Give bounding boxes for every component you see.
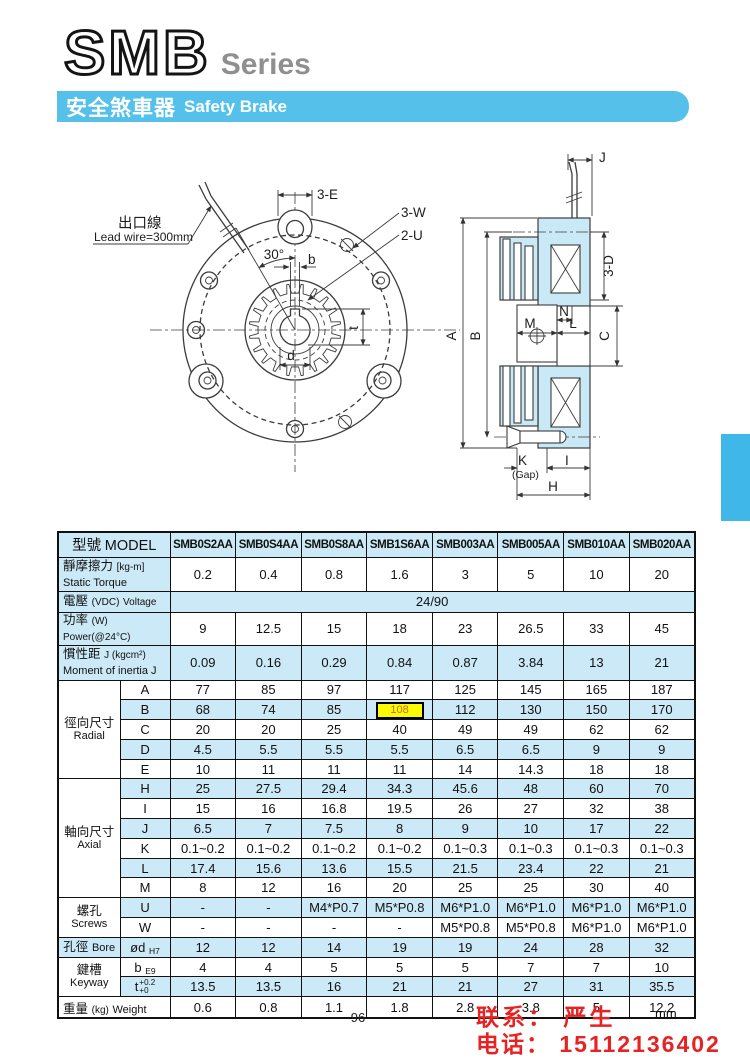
table-cell: 8: [367, 819, 433, 839]
table-cell: 33: [564, 612, 630, 645]
group-label: 鍵槽Keyway: [58, 957, 120, 997]
table-cell: 12: [170, 937, 236, 957]
table-cell: 21: [432, 977, 498, 997]
dim-row-J: J6.577.589101722: [58, 819, 695, 839]
dim-label-k: K: [518, 453, 527, 468]
page-number: 96: [338, 1010, 378, 1025]
table-cell: 16.8: [301, 799, 367, 819]
table-cell: 62: [564, 720, 630, 740]
table-cell: 9: [629, 739, 695, 759]
table-cell: 170: [629, 700, 695, 720]
table-cell: 28: [564, 937, 630, 957]
table-cell: 165: [564, 680, 630, 700]
table-cell: 0.1~0.3: [432, 838, 498, 858]
dim-row-C: C2020254049496262: [58, 720, 695, 740]
table-cell: 62: [629, 720, 695, 740]
table-cell: 0.1~0.3: [629, 838, 695, 858]
table-cell: 0.6: [170, 997, 236, 1018]
section-view-drawing: J 3-D A B N M L C K (Gap) I H: [444, 150, 623, 500]
table-cell: 3: [432, 557, 498, 591]
table-cell: 49: [498, 720, 564, 740]
table-cell: 11: [367, 759, 433, 779]
table-cell: 9: [432, 819, 498, 839]
table-cell: 15.6: [236, 858, 302, 878]
dim-label-j: J: [599, 150, 606, 165]
model-column-header: SMB0S2AA: [170, 532, 236, 557]
catalog-page: SMBSeries 安全煞車器 Safety Brake .ln{fill:no…: [0, 0, 750, 1061]
table-cell: M6*P1.0: [564, 918, 630, 938]
table-cell: 0.8: [236, 997, 302, 1018]
table-cell: M6*P1.0: [498, 898, 564, 918]
table-cell: 4: [170, 957, 236, 977]
table-cell: 7: [564, 957, 630, 977]
table-cell: 5: [367, 957, 433, 977]
spec-table: 型號 MODELSMB0S2AASMB0S4AASMB0S8AASMB1S6AA…: [57, 531, 696, 1019]
dim-key-J: J: [120, 819, 170, 839]
model-column-header: SMB0S4AA: [236, 532, 302, 557]
dim-label-gap: (Gap): [512, 469, 539, 481]
table-cell: 18: [564, 759, 630, 779]
table-cell: 29.4: [301, 779, 367, 799]
table-cell: 0.8: [301, 557, 367, 591]
dim-key-b: b E9: [120, 957, 170, 977]
table-cell: 0.1~0.2: [301, 838, 367, 858]
table-cell: 16: [301, 878, 367, 898]
dim-row-W: W----M5*P0.8M5*P0.8M6*P1.0M6*P1.0: [58, 918, 695, 938]
group-label: 軸向尺寸Axial: [58, 779, 120, 898]
table-cell: 48: [498, 779, 564, 799]
table-cell: 5: [432, 957, 498, 977]
table-cell: 25: [498, 878, 564, 898]
table-cell: 10: [629, 957, 695, 977]
table-cell: 38: [629, 799, 695, 819]
dim-label-b: b: [308, 252, 316, 267]
table-cell: 5: [301, 957, 367, 977]
table-cell: 26.5: [498, 612, 564, 645]
table-cell: -: [301, 918, 367, 938]
dim-key-C: C: [120, 720, 170, 740]
dim-label-h: H: [548, 479, 558, 494]
table-cell: 0.1~0.2: [170, 838, 236, 858]
dim-label-b2: B: [468, 331, 483, 340]
dim-label-m: M: [524, 316, 535, 331]
table-cell: 6.5: [170, 819, 236, 839]
dim-key-W: W: [120, 918, 170, 938]
table-cell: 14: [301, 937, 367, 957]
table-cell: 85: [301, 700, 367, 720]
spec-row-power: 功率 (W) Power(@24°C)912.515182326.53345: [58, 612, 695, 645]
table-cell: 1.6: [367, 557, 433, 591]
table-cell: 30: [564, 878, 630, 898]
model-column-header: SMB003AA: [432, 532, 498, 557]
table-cell: -: [236, 918, 302, 938]
dim-label-a: A: [444, 331, 459, 340]
row-label-inertia: 慣性距 J (kgcm²)Moment of inertia J: [58, 645, 170, 680]
table-cell: 117: [367, 680, 433, 700]
table-cell: 13.5: [236, 977, 302, 997]
spec-row-static-torque: 靜摩擦力 [kg-m]Static Torque0.20.40.81.63510…: [58, 557, 695, 591]
dim-row-I: I151616.819.526273238: [58, 799, 695, 819]
dim-label-t: t: [346, 326, 361, 330]
table-cell: 32: [564, 799, 630, 819]
category-banner: 安全煞車器 Safety Brake: [57, 91, 689, 122]
table-cell: 0.29: [301, 645, 367, 680]
banner-title-zh: 安全煞車器: [66, 92, 176, 122]
table-cell: 24: [498, 937, 564, 957]
dim-row-ød: 孔徑 Boreød H71212141919242832: [58, 937, 695, 957]
table-cell: 4: [236, 957, 302, 977]
table-cell: 25: [432, 878, 498, 898]
dim-key-L: L: [120, 858, 170, 878]
table-cell: 45: [629, 612, 695, 645]
row-label-weight: 重量 (kg) Weight: [58, 997, 170, 1018]
technical-drawings: .ln{fill:none;stroke:#3c3c3c;stroke-widt…: [60, 140, 750, 532]
table-cell: 4.5: [170, 739, 236, 759]
table-cell: 20: [170, 720, 236, 740]
table-cell: 21: [367, 977, 433, 997]
page-title: SMBSeries: [64, 18, 311, 89]
table-cell: 15: [301, 612, 367, 645]
table-cell: 20: [367, 878, 433, 898]
banner-title-en: Safety Brake: [184, 97, 287, 117]
highlighted-cell: 108: [367, 700, 433, 720]
table-cell: -: [170, 898, 236, 918]
table-cell: 27.5: [236, 779, 302, 799]
table-cell: 16: [301, 977, 367, 997]
table-cell: 13: [564, 645, 630, 680]
table-cell: 70: [629, 779, 695, 799]
dim-key-B: B: [120, 700, 170, 720]
dim-row-b: 鍵槽Keywayb E9445557710: [58, 957, 695, 977]
table-cell: M6*P1.0: [629, 918, 695, 938]
table-cell: M4*P0.7: [301, 898, 367, 918]
table-cell: 0.4: [236, 557, 302, 591]
table-cell: 0.09: [170, 645, 236, 680]
contact-stamp: 联系： 严生 电话： 15112136402: [476, 1004, 721, 1058]
front-view-drawing: 出口線 Lead wire=300mm 3-E 3-W 2-U 30° b d …: [93, 182, 460, 472]
dim-row-A: 徑向尺寸RadialA778597117125145165187: [58, 680, 695, 700]
table-cell: -: [236, 898, 302, 918]
table-cell: -: [170, 918, 236, 938]
table-cell: 15.5: [367, 858, 433, 878]
dim-row-H: 軸向尺寸AxialH2527.529.434.345.6486070: [58, 779, 695, 799]
dim-label-n: N: [559, 304, 569, 319]
highlighted-value[interactable]: 108: [376, 702, 424, 719]
table-cell: 0.1~0.3: [498, 838, 564, 858]
group-label: 孔徑 Bore: [58, 937, 120, 957]
series-subtitle: Series: [221, 48, 311, 81]
table-cell: 112: [432, 700, 498, 720]
table-cell: 45.6: [432, 779, 498, 799]
table-cell: 27: [498, 977, 564, 997]
model-column-header: SMB010AA: [564, 532, 630, 557]
table-cell: 21.5: [432, 858, 498, 878]
dim-key-M: M: [120, 878, 170, 898]
table-cell: 19: [432, 937, 498, 957]
spec-row-inertia: 慣性距 J (kgcm²)Moment of inertia J0.090.16…: [58, 645, 695, 680]
table-cell: 26: [432, 799, 498, 819]
span-value-cell: 24/90: [170, 591, 695, 612]
table-cell: 68: [170, 700, 236, 720]
table-cell: 49: [432, 720, 498, 740]
table-cell: -: [367, 918, 433, 938]
group-label: 徑向尺寸Radial: [58, 680, 120, 779]
contact-phone: 电话： 15112136402: [476, 1030, 721, 1058]
dim-row-t: t+0.2+013.513.5162121273135.5: [58, 977, 695, 997]
dim-row-D: D4.55.55.55.56.56.599: [58, 739, 695, 759]
dim-row-B: B687485108112130150170: [58, 700, 695, 720]
model-column-header: SMB020AA: [629, 532, 695, 557]
group-label: 螺孔Screws: [58, 898, 120, 938]
table-cell: 5.5: [301, 739, 367, 759]
series-title: SMB: [64, 19, 211, 88]
dim-key-E: E: [120, 759, 170, 779]
table-cell: 14: [432, 759, 498, 779]
table-cell: 8: [170, 878, 236, 898]
table-cell: 19: [367, 937, 433, 957]
table-cell: 17: [564, 819, 630, 839]
dim-label-c: C: [597, 331, 612, 341]
dim-row-U: 螺孔ScrewsU--M4*P0.7M5*P0.8M6*P1.0M6*P1.0M…: [58, 898, 695, 918]
contact-name: 联系： 严生: [476, 1004, 721, 1030]
table-cell: 32: [629, 937, 695, 957]
table-cell: 9: [170, 612, 236, 645]
table-cell: M5*P0.8: [367, 898, 433, 918]
table-cell: 0.87: [432, 645, 498, 680]
dim-key-I: I: [120, 799, 170, 819]
table-cell: 18: [367, 612, 433, 645]
table-cell: 40: [367, 720, 433, 740]
table-cell: 0.84: [367, 645, 433, 680]
model-column-header: SMB005AA: [498, 532, 564, 557]
table-cell: 16: [236, 799, 302, 819]
model-header-row: 型號 MODELSMB0S2AASMB0S4AASMB0S8AASMB1S6AA…: [58, 532, 695, 557]
table-cell: 35.5: [629, 977, 695, 997]
table-cell: 6.5: [432, 739, 498, 759]
row-label-voltage: 電壓 (VDC) Voltage: [58, 591, 170, 612]
table-cell: 60: [564, 779, 630, 799]
dim-label-l: L: [569, 316, 577, 331]
table-cell: 40: [629, 878, 695, 898]
row-label-static-torque: 靜摩擦力 [kg-m]Static Torque: [58, 557, 170, 591]
table-cell: 125: [432, 680, 498, 700]
table-cell: 18: [629, 759, 695, 779]
table-cell: 74: [236, 700, 302, 720]
table-cell: 20: [629, 557, 695, 591]
dim-label-3e: 3-E: [317, 187, 338, 202]
table-cell: 7.5: [301, 819, 367, 839]
dim-row-K: K0.1~0.20.1~0.20.1~0.20.1~0.20.1~0.30.1~…: [58, 838, 695, 858]
table-cell: 21: [629, 645, 695, 680]
table-cell: 130: [498, 700, 564, 720]
table-cell: 12.5: [236, 612, 302, 645]
dim-key-A: A: [120, 680, 170, 700]
dim-row-L: L17.415.613.615.521.523.42221: [58, 858, 695, 878]
table-cell: 150: [564, 700, 630, 720]
table-cell: 23.4: [498, 858, 564, 878]
table-cell: 0.2: [170, 557, 236, 591]
table-cell: 21: [629, 858, 695, 878]
dim-label-i: I: [565, 453, 569, 468]
table-cell: M6*P1.0: [629, 898, 695, 918]
table-cell: 77: [170, 680, 236, 700]
table-cell: 7: [236, 819, 302, 839]
table-cell: 22: [629, 819, 695, 839]
table-cell: 0.1~0.3: [564, 838, 630, 858]
table-cell: 23: [432, 612, 498, 645]
table-cell: 25: [170, 779, 236, 799]
dim-key-H: H: [120, 779, 170, 799]
dim-label-2u: 2-U: [401, 228, 423, 243]
dim-row-M: M812162025253040: [58, 878, 695, 898]
table-cell: 10: [498, 819, 564, 839]
table-cell: 27: [498, 799, 564, 819]
table-cell: 15: [170, 799, 236, 819]
table-cell: 0.16: [236, 645, 302, 680]
table-cell: 11: [301, 759, 367, 779]
table-cell: M5*P0.8: [498, 918, 564, 938]
table-cell: 7: [498, 957, 564, 977]
dim-row-E: E101111111414.31818: [58, 759, 695, 779]
model-column-header: SMB1S6AA: [367, 532, 433, 557]
table-cell: 97: [301, 680, 367, 700]
table-cell: 0.1~0.2: [236, 838, 302, 858]
dim-key-U: U: [120, 898, 170, 918]
spec-row-voltage: 電壓 (VDC) Voltage24/90: [58, 591, 695, 612]
table-cell: 19.5: [367, 799, 433, 819]
dim-key-D: D: [120, 739, 170, 759]
model-column-header: SMB0S8AA: [301, 532, 367, 557]
table-cell: M6*P1.0: [432, 898, 498, 918]
table-cell: 12: [236, 878, 302, 898]
table-cell: 10: [170, 759, 236, 779]
dim-label-30deg: 30°: [264, 247, 284, 262]
table-cell: 14.3: [498, 759, 564, 779]
table-cell: 25: [301, 720, 367, 740]
table-cell: 31: [564, 977, 630, 997]
table-cell: M5*P0.8: [432, 918, 498, 938]
dim-label-3w: 3-W: [401, 205, 426, 220]
table-cell: 13.6: [301, 858, 367, 878]
dim-key-ød: ød H7: [120, 937, 170, 957]
dim-key-K: K: [120, 838, 170, 858]
table-cell: 10: [564, 557, 630, 591]
table-cell: 85: [236, 680, 302, 700]
table-cell: 20: [236, 720, 302, 740]
table-cell: 5.5: [367, 739, 433, 759]
table-cell: 34.3: [367, 779, 433, 799]
dim-label-3d: 3-D: [601, 255, 616, 277]
table-cell: 187: [629, 680, 695, 700]
table-cell: 11: [236, 759, 302, 779]
row-label-power: 功率 (W) Power(@24°C): [58, 612, 170, 645]
table-cell: 0.1~0.2: [367, 838, 433, 858]
lead-wire-label-en: Lead wire=300mm: [94, 230, 193, 244]
dim-label-d: d: [287, 348, 295, 363]
table-cell: 145: [498, 680, 564, 700]
table-cell: 5: [498, 557, 564, 591]
table-cell: 3.84: [498, 645, 564, 680]
table-cell: 5.5: [236, 739, 302, 759]
table-cell: 6.5: [498, 739, 564, 759]
table-cell: 22: [564, 858, 630, 878]
table-cell: 9: [564, 739, 630, 759]
table-cell: 12: [236, 937, 302, 957]
dim-key-t: t+0.2+0: [120, 977, 170, 997]
table-cell: 13.5: [170, 977, 236, 997]
model-header-label: 型號 MODEL: [58, 532, 170, 557]
table-cell: 17.4: [170, 858, 236, 878]
table-cell: M6*P1.0: [564, 898, 630, 918]
